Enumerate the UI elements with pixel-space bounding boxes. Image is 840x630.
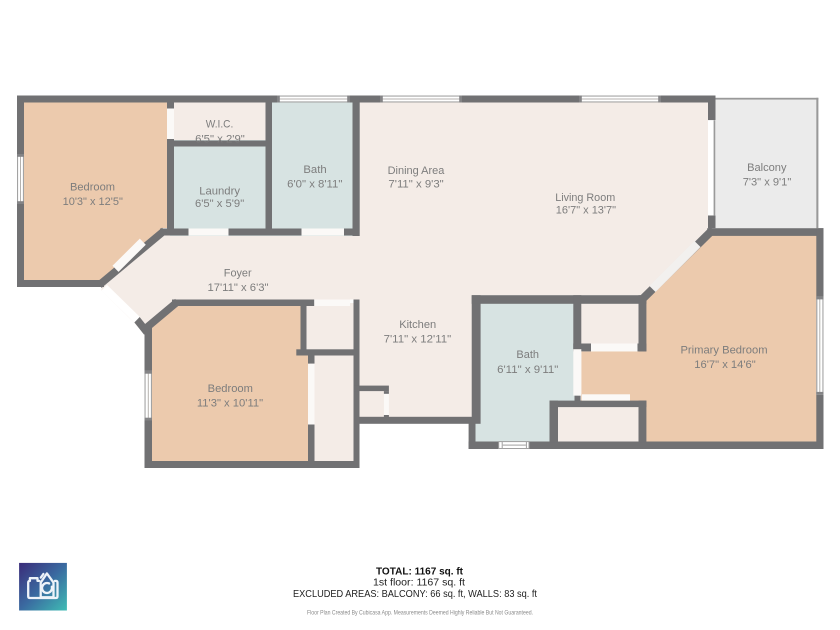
svg-text:Bath: Bath xyxy=(303,164,326,176)
svg-text:Laundry: Laundry xyxy=(199,185,240,197)
svg-text:Bath: Bath xyxy=(516,349,539,361)
svg-text:6'5" x 2'9": 6'5" x 2'9" xyxy=(195,134,245,146)
svg-text:6'0" x 8'11": 6'0" x 8'11" xyxy=(287,178,342,190)
svg-text:Bedroom: Bedroom xyxy=(208,383,253,395)
svg-text:7'11" x 9'3": 7'11" x 9'3" xyxy=(388,179,443,191)
svg-text:6'5" x 5'9": 6'5" x 5'9" xyxy=(195,198,244,210)
svg-text:16'7" x 14'6": 16'7" x 14'6" xyxy=(694,359,755,371)
svg-text:7'3" x 9'1": 7'3" x 9'1" xyxy=(743,176,792,188)
svg-text:Primary Bedroom: Primary Bedroom xyxy=(680,345,767,357)
svg-text:11'3" x 10'11": 11'3" x 10'11" xyxy=(197,397,263,409)
svg-text:Foyer: Foyer xyxy=(224,267,252,279)
svg-text:Balcony: Balcony xyxy=(747,162,787,174)
svg-text:6'11" x 9'11": 6'11" x 9'11" xyxy=(497,364,558,376)
svg-text:EXCLUDED AREAS: BALCONY: 66 sq: EXCLUDED AREAS: BALCONY: 66 sq. ft, WALL… xyxy=(293,588,537,600)
svg-text:16'7" x 13'7": 16'7" x 13'7" xyxy=(556,205,616,217)
svg-text:7'11" x 12'11": 7'11" x 12'11" xyxy=(384,334,452,346)
svg-text:Dining Area: Dining Area xyxy=(388,165,445,177)
svg-text:Living Room: Living Room xyxy=(555,192,615,204)
svg-text:W.I.C.: W.I.C. xyxy=(206,119,234,131)
svg-text:10'3" x 12'5": 10'3" x 12'5" xyxy=(63,196,123,208)
svg-text:Kitchen: Kitchen xyxy=(399,319,436,331)
svg-text:1st floor: 1167 sq. ft: 1st floor: 1167 sq. ft xyxy=(373,577,465,589)
svg-text:Bedroom: Bedroom xyxy=(70,182,115,194)
svg-text:17'11" x 6'3": 17'11" x 6'3" xyxy=(207,282,268,294)
svg-text:Floor Plan Created By Cubicasa: Floor Plan Created By Cubicasa App. Meas… xyxy=(307,610,533,617)
